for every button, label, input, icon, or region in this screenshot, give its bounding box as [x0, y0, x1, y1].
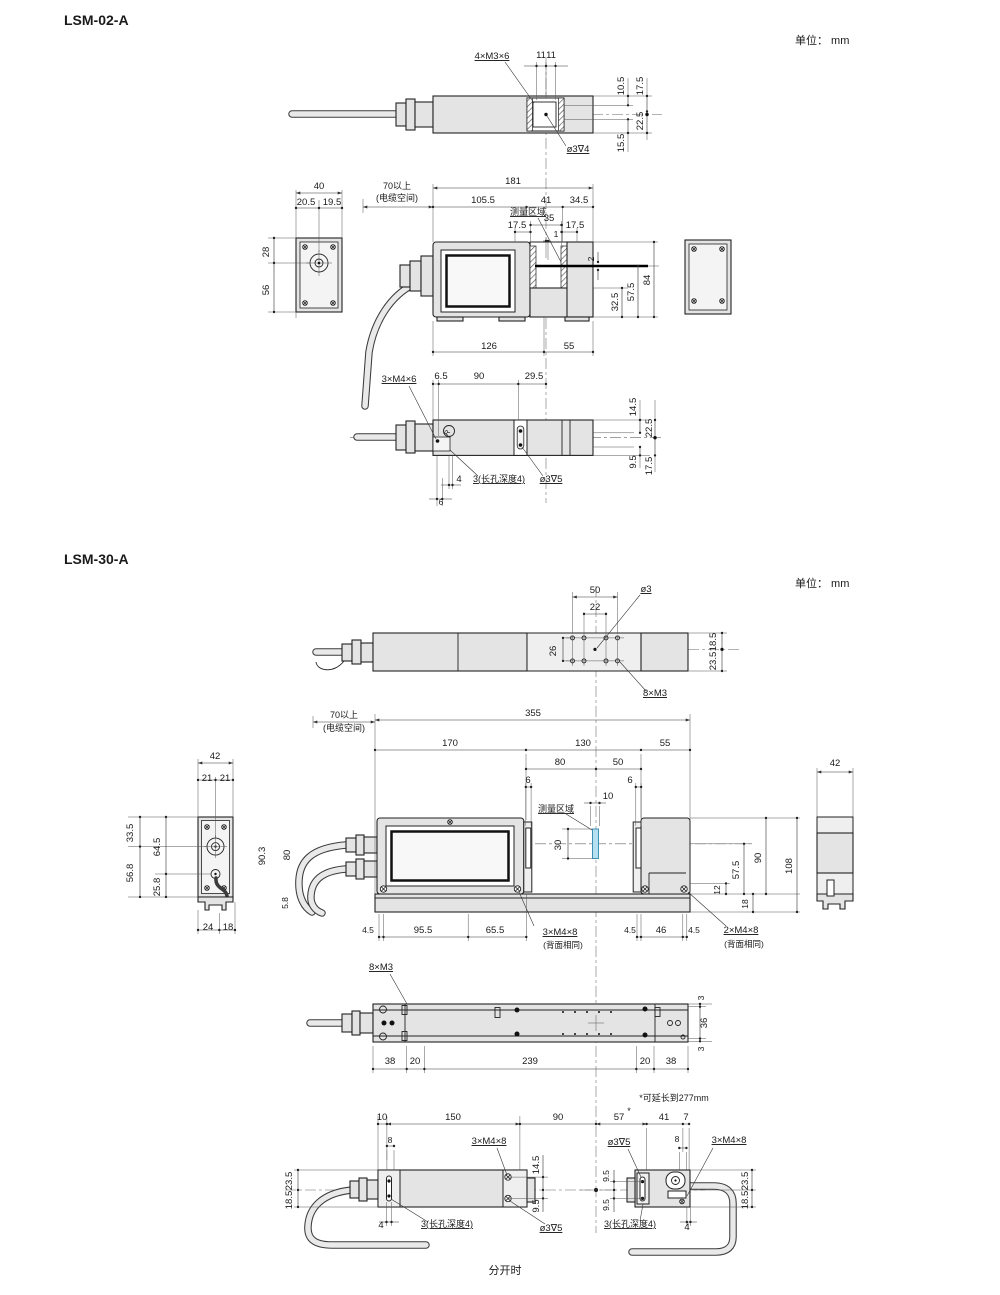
dim-label: 12 — [712, 885, 722, 895]
dim-label: 41 — [541, 195, 552, 206]
dim-label: 5.8 — [280, 897, 290, 909]
base-rail — [375, 894, 690, 912]
dim-label: 6.5 — [434, 371, 447, 382]
lsm30-drawing: 5022ø3268×M318.523.570以上(电缆空间)3551701305… — [125, 584, 853, 1252]
dim-label: * — [627, 1106, 631, 1116]
dim-label: 6 — [627, 775, 632, 786]
dim-label: 80 — [282, 850, 293, 861]
dim-label: ø3 — [640, 584, 651, 595]
dim-label: 23.5 — [740, 1172, 751, 1191]
dim-label: 10 — [603, 791, 614, 802]
dim-label: 17.5 — [566, 220, 585, 231]
dim-label: 4×M3×6 — [475, 51, 510, 62]
lsm02-right-end-view — [685, 240, 731, 314]
dim-label: 57.5 — [731, 861, 742, 880]
dim-label: 1 — [554, 229, 559, 239]
dim-label: 29.5 — [525, 371, 544, 382]
lsm30-left-end-view — [128, 759, 235, 934]
cable-connector — [421, 256, 433, 296]
dim-label: 25.8 — [152, 878, 163, 897]
dim-label: 90.3 — [257, 847, 268, 866]
dim-label: 9.5 — [628, 455, 639, 468]
dim-label: 测量区域 — [538, 803, 574, 814]
dim-label: 14.5 — [628, 398, 639, 417]
lsm30-main-view — [299, 714, 800, 941]
dim-label: 80 — [555, 757, 566, 768]
dim-label: 64.5 — [152, 838, 163, 857]
dim-label: 50 — [590, 585, 601, 596]
dim-label: 2 — [586, 256, 596, 261]
dim-label: 3 — [696, 1046, 706, 1051]
dim-label: 11 — [546, 50, 556, 61]
dim-label: 3(长孔深度4) — [604, 1218, 656, 1229]
dim-label: 126 — [481, 341, 497, 352]
dim-label: 65.5 — [486, 925, 505, 936]
dim-label: 20 — [640, 1056, 651, 1067]
dim-label: 3×M4×8 — [472, 1136, 507, 1147]
device-body — [433, 96, 593, 133]
dim-label: 355 — [525, 708, 541, 719]
dim-label: 57.5 — [626, 283, 637, 302]
dim-label: 23.5 — [708, 652, 719, 671]
dim-label: 38 — [385, 1056, 396, 1067]
dim-label: 8×M3 — [369, 962, 393, 973]
cable-connector — [396, 103, 406, 126]
dim-label: 18.5 — [740, 1191, 751, 1210]
dim-label: (电缆空间) — [323, 722, 365, 733]
dim-label: 19.5 — [323, 197, 342, 208]
dim-label: 42 — [210, 751, 221, 762]
dim-label: 9.5 — [601, 1170, 611, 1182]
dim-label: 17.5 — [508, 220, 527, 231]
dim-label: 4.5 — [688, 925, 700, 935]
dim-label: 2×M4×8 — [724, 925, 759, 936]
dim-label: 20.5 — [297, 197, 316, 208]
receiver-window — [636, 828, 641, 868]
dim-label: (电缆空间) — [376, 192, 418, 203]
dim-label: 55 — [564, 341, 575, 352]
dim-label: 3×M4×6 — [382, 374, 417, 385]
dim-label: 105.5 — [471, 195, 495, 206]
dim-label: 170 — [442, 738, 458, 749]
dim-label: 50 — [613, 757, 624, 768]
dim-label: *可延长到277mm — [639, 1092, 709, 1103]
dim-label: 40 — [314, 181, 325, 192]
dim-label: ø3∇5 — [608, 1137, 631, 1148]
dim-label: 21 — [220, 773, 231, 784]
dim-label: 90 — [474, 371, 485, 382]
lsm30-right-end-view — [817, 768, 853, 909]
mounting-foot — [817, 894, 853, 909]
dim-label: 18 — [740, 899, 750, 909]
dim-label: 测量区域 — [510, 206, 546, 217]
dim-label: 42 — [830, 758, 841, 769]
dim-label: 6 — [525, 775, 530, 786]
dim-label: 84 — [642, 275, 653, 286]
dim-label: 3(长孔深度4) — [421, 1218, 473, 1229]
dim-label: 35 — [544, 213, 555, 224]
drawing-page: LSM-02-A 单位： mm LSM-30-A 单位： mm 分开时 — [0, 0, 1000, 1295]
lsm02-bottom-view — [350, 380, 662, 506]
dim-label: ø3∇5 — [540, 474, 563, 485]
dim-label: 70以上 — [383, 181, 411, 191]
device-body — [373, 633, 527, 671]
lsm02-left-end-view — [268, 190, 342, 318]
dim-label: 22.5 — [644, 419, 655, 438]
dim-label: 41 — [659, 1112, 670, 1123]
dim-label: 17.5 — [635, 77, 646, 96]
dim-label: 9.5 — [531, 1199, 542, 1212]
dim-label: 130 — [575, 738, 591, 749]
dim-label: 4 — [378, 1220, 383, 1231]
dim-label: 33.5 — [125, 824, 136, 843]
dim-label: 8 — [388, 1135, 393, 1145]
dim-label: 32.5 — [610, 293, 621, 312]
dim-label: 17.5 — [644, 457, 655, 476]
dim-label: 150 — [445, 1112, 461, 1123]
dim-label: 70以上 — [330, 710, 358, 720]
dim-label: 3(长孔深度4) — [473, 473, 525, 484]
dim-label: ø3∇5 — [540, 1223, 563, 1234]
dim-label: (背面相同) — [724, 939, 764, 949]
dim-label: 38 — [666, 1056, 677, 1067]
emitter-window — [526, 828, 531, 868]
dim-label: 30 — [553, 840, 564, 851]
dim-label: 10 — [377, 1112, 388, 1123]
lsm02-top-view — [292, 62, 662, 152]
dim-label: 23.5 — [284, 1172, 295, 1191]
dim-label: 56.8 — [125, 864, 136, 883]
device-body — [433, 420, 593, 455]
dim-label: 18 — [223, 922, 234, 933]
dim-label: 57 — [614, 1112, 625, 1123]
lsm30-bottom-face-view — [310, 974, 712, 1073]
dim-label: 24 — [203, 922, 214, 933]
dim-label: 108 — [784, 858, 795, 874]
dim-label: 4.5 — [624, 925, 636, 935]
dim-label: 20 — [410, 1056, 421, 1067]
dim-label: 9.5 — [601, 1199, 611, 1211]
dim-label: 8 — [675, 1134, 680, 1144]
lsm30-top-view — [316, 592, 740, 691]
dim-label: 34.5 — [570, 195, 589, 206]
dim-label: 8×M3 — [643, 688, 667, 699]
dim-label: 55 — [660, 738, 671, 749]
dim-label: 4.5 — [362, 925, 374, 935]
dim-label: 239 — [522, 1056, 538, 1067]
dim-label: 56 — [261, 285, 272, 296]
dim-label: 90 — [753, 853, 764, 864]
dim-label: 15.5 — [616, 134, 627, 153]
dim-label: 7 — [683, 1112, 688, 1123]
dim-label: 14.5 — [531, 1156, 542, 1175]
dim-label: 46 — [656, 925, 667, 936]
dim-label: 11 — [536, 50, 546, 61]
dim-label: 95.5 — [414, 925, 433, 936]
dim-label: 26 — [548, 646, 559, 657]
dim-label: 18.5 — [708, 633, 719, 652]
lsm02-drawing: 4×M3×61111ø3∇410.517.522.515.54020.519.5… — [261, 50, 731, 507]
dim-label: (背面相同) — [543, 940, 583, 950]
dim-label: 36 — [699, 1018, 710, 1029]
dim-label: 28 — [261, 247, 272, 258]
measuring-region — [593, 829, 599, 859]
dim-label: 3×M4×8 — [543, 927, 578, 938]
dim-label: 4 — [456, 474, 461, 485]
dim-label: 90 — [553, 1112, 564, 1123]
dim-label: 22.5 — [635, 112, 646, 131]
dim-label: 10.5 — [616, 77, 627, 96]
technical-drawing-svg: 4×M3×61111ø3∇410.517.522.515.54020.519.5… — [0, 0, 1000, 1295]
dim-label: 181 — [505, 176, 521, 187]
dim-label: 3 — [696, 995, 706, 1000]
dim-label: 4 — [684, 1222, 689, 1233]
dim-label: 18.5 — [284, 1191, 295, 1210]
mounting-foot — [198, 897, 233, 910]
receiver-unit-body — [641, 818, 690, 894]
dim-label: 3×M4×8 — [712, 1135, 747, 1146]
dim-label: 6 — [439, 497, 444, 507]
dim-label: ø3∇4 — [567, 144, 590, 155]
dim-label: 21 — [202, 773, 213, 784]
dim-label: 22 — [590, 602, 601, 613]
